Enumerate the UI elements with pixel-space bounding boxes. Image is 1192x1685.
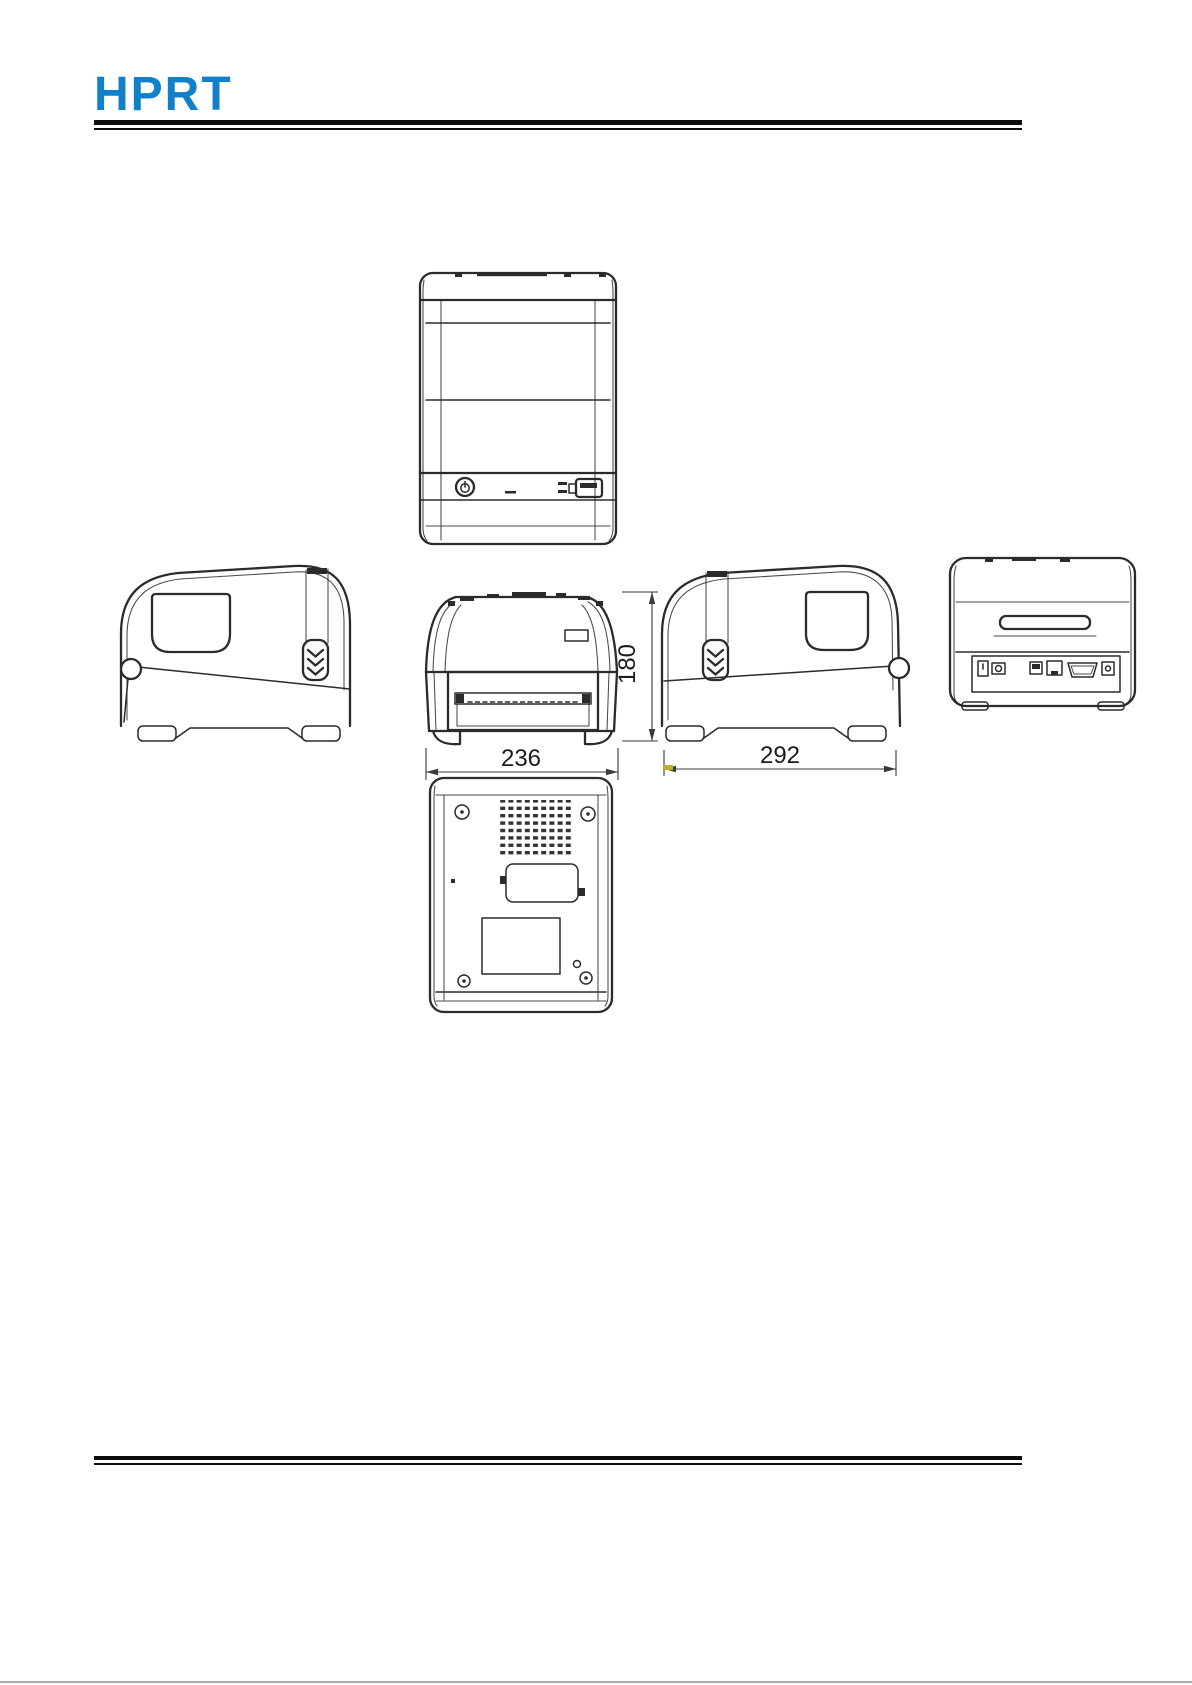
rear-view-outline (950, 558, 1135, 706)
front-cover-seam-marks (448, 592, 603, 606)
front-recess (448, 672, 598, 730)
right-side-view (662, 566, 909, 741)
accent-tick (663, 765, 673, 770)
serial-port-icon (1068, 663, 1097, 677)
manual-page: HPRT (0, 0, 1192, 1685)
right-side-base (666, 726, 886, 741)
footer-rule-thick (94, 1456, 1022, 1460)
front-view (426, 592, 617, 744)
dimension-label-292: 292 (760, 742, 800, 769)
hinge-knob (121, 659, 141, 679)
paper-exit-slot (455, 693, 591, 726)
dimension-label-236: 236 (501, 745, 541, 772)
lan-port-icon (1047, 661, 1062, 675)
power-switch-icon (978, 661, 988, 676)
latch-button-icon (703, 571, 728, 680)
printer-dimensions-figure: 236 292 180 (0, 0, 1192, 1685)
left-side-base (138, 726, 340, 741)
front-feet (433, 731, 612, 744)
bottom-dot (574, 961, 581, 968)
rear-paper-slot (1000, 616, 1090, 629)
bottom-view (430, 778, 612, 1012)
top-view (420, 273, 616, 544)
page-bottom-edge (0, 1681, 1192, 1683)
side-window (806, 592, 868, 650)
dimension-label-180: 180 (614, 644, 641, 684)
bottom-mark (451, 879, 455, 883)
front-indicator-window (565, 630, 588, 641)
left-side-view (121, 566, 350, 741)
footer-rule-thin (94, 1463, 1022, 1465)
rear-view (950, 557, 1135, 710)
side-window (152, 594, 230, 652)
bottom-plate-opening (482, 918, 560, 974)
power-button-icon (456, 478, 474, 496)
top-view-mark (505, 491, 516, 494)
power-inlet-icon (1102, 662, 1114, 675)
dimension-body-height: 180 (614, 592, 658, 741)
module-cover (500, 864, 585, 902)
dc-jack-icon (992, 663, 1005, 674)
dimension-side-depth: 292 (663, 742, 896, 776)
dimension-front-width: 236 (426, 745, 618, 780)
top-view-outline (420, 273, 616, 544)
latch-button-icon (303, 568, 328, 680)
usb-port-icon (1030, 662, 1042, 674)
hinge-knob (889, 658, 909, 678)
vent-grid (500, 800, 572, 858)
